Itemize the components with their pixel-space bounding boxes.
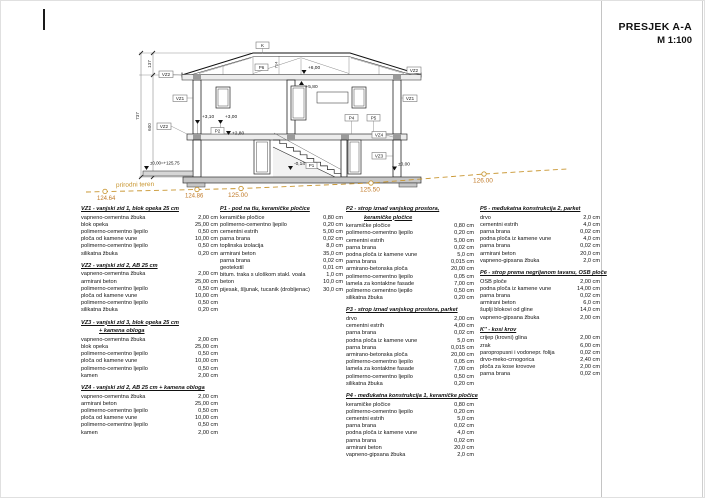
material-thickness: 14,00 cm	[577, 286, 600, 293]
legend-column: P5 - međukatna konstrukcija 2, parketdrv…	[480, 206, 600, 384]
legend-section: P5 - međukatna konstrukcija 2, parketdrv…	[480, 206, 600, 265]
material-name: keramičke pločice	[346, 223, 390, 230]
legend-row: vapneno-cementna žbuka2,00 cm	[81, 394, 218, 401]
material-thickness: 6,00 cm	[580, 343, 600, 350]
material-name: drvo	[480, 215, 491, 222]
legend-row: vapneno-cementna žbuka2,00 cm	[81, 271, 218, 278]
legend-row: polimerno-cementno ljepilo0,50 cm	[81, 408, 218, 415]
material-name: lamela za kontaktne fasade	[346, 281, 414, 288]
material-thickness: 0,02 cm	[454, 245, 474, 252]
material-name: ploča od kamene vune	[81, 415, 137, 422]
legend-row: parna brana0,02 cm	[220, 258, 343, 265]
material-thickness: 0,02 cm	[454, 330, 474, 337]
legend-row: ploča od kamene vune10,00 cm	[81, 358, 218, 365]
material-thickness: 10,0 cm	[323, 279, 343, 286]
material-thickness: 2,00 cm	[454, 316, 474, 323]
legend-row: toplinska izolacija8,0 cm	[220, 243, 343, 250]
material-name: parna brana	[346, 438, 376, 445]
material-name: polimerno-cementno ljepilo	[81, 351, 148, 358]
legend-row: cementni estrih5,0 cm	[346, 416, 474, 423]
material-thickness: 4,0 cm	[457, 430, 474, 437]
material-thickness: 0,02 cm	[580, 293, 600, 300]
material-name: polimerno cementno ljepilo	[346, 288, 413, 295]
material-thickness: 0,50 cm	[198, 351, 218, 358]
legend-section-title: P6 - strop prema negrijanom tavanu, OSB …	[480, 270, 600, 278]
legend-section-title: P5 - međukatna konstrukcija 2, parket	[480, 206, 600, 214]
material-thickness: 2,00 cm	[198, 271, 218, 278]
material-thickness: 2,00 cm	[580, 315, 600, 322]
material-name: armirani beton	[81, 401, 117, 408]
legend-column: P2 - strop iznad vanjskog prostora,keram…	[346, 206, 474, 464]
material-name: kamen	[81, 430, 98, 437]
material-name: ploča za kose krovove	[480, 364, 535, 371]
material-thickness: 0,80 cm	[454, 223, 474, 230]
legend-row: parna brana0,02 cm	[346, 245, 474, 252]
material-name: cementni estrih	[346, 416, 384, 423]
material-name: cementni estrih	[346, 323, 384, 330]
material-thickness: 0,20 cm	[454, 295, 474, 302]
legend-row: geotekstil0,01 cm	[220, 265, 343, 272]
legend-row: podna ploča iz kamene vune4,0 cm	[480, 236, 600, 243]
legend-row: drvo2,00 cm	[346, 316, 474, 323]
material-thickness: 10,00 cm	[195, 293, 218, 300]
material-name: parna brana	[480, 293, 510, 300]
legend-row: parna brana0,02 cm	[346, 423, 474, 430]
legend-row: vapneno-gipsana žbuka2,00 cm	[480, 315, 600, 322]
material-thickness: 2,00 cm	[198, 337, 218, 344]
material-name: podna ploča iz kamene vune	[346, 430, 417, 437]
material-name: polimerno-cementno ljepilo	[346, 374, 413, 381]
legend-row: polimerno-cementno ljepilo0,50 cm	[81, 229, 218, 236]
material-name: parna brana	[220, 236, 250, 243]
material-name: parna brana	[480, 229, 510, 236]
material-name: polimerno-cementno ljepilo	[81, 408, 148, 415]
legend-row: keramičke pločice0,80 cm	[346, 402, 474, 409]
material-thickness: 2,0 cm	[583, 215, 600, 222]
material-thickness: 4,00 cm	[454, 323, 474, 330]
legend-row: armirani beton20,0 cm	[346, 445, 474, 452]
material-thickness: 0,20 cm	[454, 409, 474, 416]
material-name: armirano-betonska ploča	[346, 266, 408, 273]
material-name: pijesak, šljunak, tucanik (drobljenac)	[220, 287, 310, 294]
legend-section-title: + kamena obloga	[81, 328, 218, 336]
material-thickness: 0,50 cm	[198, 422, 218, 429]
legend-section: VZ4 - vanjski zid 2, AB 25 cm + kamena o…	[81, 385, 218, 437]
material-name: silikatna žbuka	[346, 295, 383, 302]
material-name: parna brana	[346, 423, 376, 430]
material-thickness: 2,00 cm	[198, 373, 218, 380]
legend-section: VZ2 - vanjski zid 2, AB 25 cmvapneno-cem…	[81, 263, 218, 315]
legend-section-title: P4 - međukatna konstrukcija 1, keramičke…	[346, 393, 474, 401]
material-name: armirani beton	[220, 251, 256, 258]
material-thickness: 0,80 cm	[454, 402, 474, 409]
legend-row: polimerno-cementno ljepilo0,50 cm	[81, 243, 218, 250]
legend-row: armirani beton25,00 cm	[81, 401, 218, 408]
legend-row: paropropusni i vodonepr. folija0,02 cm	[480, 350, 600, 357]
material-thickness: 0,20 cm	[323, 222, 343, 229]
material-name: cementni estrih	[220, 229, 258, 236]
legend-section: P3 - strop iznad vanjskog prostora, park…	[346, 307, 474, 388]
material-name: bitum. traka s uloškom stakl. voala	[220, 272, 306, 279]
material-name: parna brana	[346, 345, 376, 352]
legend-row: parna brana0,02 cm	[480, 293, 600, 300]
legend-row: lamela za kontaktne fasade7,00 cm	[346, 366, 474, 373]
legend-row: ploča za kose krovove2,00 cm	[480, 364, 600, 371]
legend-row: podna ploča iz kamene vune5,0 cm	[346, 338, 474, 345]
material-name: silikatna žbuka	[81, 251, 118, 258]
material-name: podna ploča iz kamene vune	[480, 236, 551, 243]
material-thickness: 2,0 cm	[583, 258, 600, 265]
material-thickness: 5,00 cm	[454, 238, 474, 245]
material-name: polimerno-cementno ljepilo	[346, 409, 413, 416]
legend-row: OSB ploče2,00 cm	[480, 279, 600, 286]
material-thickness: 10,00 cm	[195, 358, 218, 365]
material-thickness: 0,20 cm	[454, 230, 474, 237]
material-thickness: 0,015 cm	[451, 345, 474, 352]
material-name: polimerno-cementno ljepilo	[81, 300, 148, 307]
material-name: polimerno-cementno ljepilo	[81, 286, 148, 293]
legend-row: drvo2,0 cm	[480, 215, 600, 222]
legend-row: silikatna žbuka0,20 cm	[81, 251, 218, 258]
material-thickness: 20,00 cm	[451, 352, 474, 359]
legend-row: silikatna žbuka0,20 cm	[81, 307, 218, 314]
material-name: cementni estrih	[480, 222, 518, 229]
legend-section: P1 - pod na tlu, keramičke pločicekerami…	[220, 206, 343, 294]
material-name: parna brana	[346, 245, 376, 252]
material-name: vapneno-cementna žbuka	[81, 337, 145, 344]
legend-row: vapneno-cementna žbuka2,00 cm	[81, 215, 218, 222]
legend-section-title: keramičke pločice	[346, 215, 474, 223]
material-name: vapneno-cementna žbuka	[81, 394, 145, 401]
material-name: keramičke pločice	[346, 402, 390, 409]
legend-row: ploča od kamene vune10,00 cm	[81, 415, 218, 422]
material-thickness: 2,00 cm	[198, 394, 218, 401]
material-name: polimerno-cementno ljepilo	[81, 229, 148, 236]
material-name: drvo-meko-crnogorica	[480, 357, 534, 364]
legend-row: podna ploča iz kamene vune14,00 cm	[480, 286, 600, 293]
material-name: vapneno-gipsana žbuka	[480, 315, 539, 322]
legend-row: keramičke pločice0,80 cm	[346, 223, 474, 230]
material-name: vapneno-gipsana žbuka	[480, 258, 539, 265]
legend-row: ploča od kamene vune10,00 cm	[81, 293, 218, 300]
material-thickness: 7,00 cm	[454, 366, 474, 373]
material-name: cementni estrih	[346, 238, 384, 245]
material-thickness: 0,02 cm	[323, 236, 343, 243]
material-thickness: 0,015 cm	[451, 259, 474, 266]
material-thickness: 0,50 cm	[198, 300, 218, 307]
material-thickness: 25,00 cm	[195, 222, 218, 229]
material-name: podna ploča iz kamene vune	[346, 252, 417, 259]
material-name: armirani beton	[81, 279, 117, 286]
legend-row: armirani beton20,0 cm	[480, 251, 600, 258]
material-name: podna ploča iz kamene vune	[346, 338, 417, 345]
material-thickness: 0,02 cm	[454, 423, 474, 430]
material-name: polimerno-cementno ljepilo	[346, 359, 413, 366]
legend-section: P6 - strop prema negrijanom tavanu, OSB …	[480, 270, 600, 322]
material-legend: VZ1 - vanjski zid 1, blok opeka 25 cmvap…	[1, 1, 705, 498]
material-thickness: 0,50 cm	[198, 243, 218, 250]
legend-row: šuplji blokovi od gline14,0 cm	[480, 307, 600, 314]
legend-row: armirani beton6,0 cm	[480, 300, 600, 307]
material-name: paropropusni i vodonepr. folija	[480, 350, 555, 357]
material-name: parna brana	[480, 243, 510, 250]
material-thickness: 35,0 cm	[323, 251, 343, 258]
material-thickness: 2,00 cm	[198, 215, 218, 222]
legend-row: polimerno-cementno ljepilo0,05 cm	[346, 359, 474, 366]
legend-row: blok opeka25,00 cm	[81, 344, 218, 351]
material-thickness: 0,50 cm	[198, 366, 218, 373]
legend-row: polimerno-cementno ljepilo0,50 cm	[346, 374, 474, 381]
material-thickness: 2,00 cm	[580, 279, 600, 286]
legend-section-title: VZ2 - vanjski zid 2, AB 25 cm	[81, 263, 218, 271]
legend-section: K'' - kosi krovcrijep (krovni) glina2,00…	[480, 327, 600, 379]
legend-row: armirano-betonska ploča20,00 cm	[346, 266, 474, 273]
material-thickness: 0,02 cm	[323, 258, 343, 265]
material-thickness: 25,00 cm	[195, 344, 218, 351]
legend-row: polimerno-cementno ljepilo0,50 cm	[81, 300, 218, 307]
material-name: parna brana	[220, 258, 250, 265]
material-name: OSB ploče	[480, 279, 507, 286]
legend-row: cementni estrih4,0 cm	[480, 222, 600, 229]
material-name: armirani beton	[480, 300, 516, 307]
legend-row: parna brana0,015 cm	[346, 345, 474, 352]
material-thickness: 20,00 cm	[451, 266, 474, 273]
material-name: silikatna žbuka	[346, 381, 383, 388]
legend-row: polimerno-cementno ljepilo0,50 cm	[81, 286, 218, 293]
material-thickness: 0,50 cm	[198, 408, 218, 415]
legend-section-title: VZ3 - vanjski zid 3, blok opeka 25 cm	[81, 320, 218, 328]
material-name: blok opeka	[81, 344, 108, 351]
legend-row: armirani beton35,0 cm	[220, 251, 343, 258]
material-thickness: 0,05 cm	[454, 359, 474, 366]
legend-row: kamen2,00 cm	[81, 430, 218, 437]
material-thickness: 8,0 cm	[326, 243, 343, 250]
material-thickness: 0,02 cm	[454, 438, 474, 445]
material-thickness: 1,0 cm	[326, 272, 343, 279]
legend-row: blok opeka25,00 cm	[81, 222, 218, 229]
material-thickness: 0,50 cm	[454, 288, 474, 295]
legend-row: polimerno-cementno ljepilo0,50 cm	[81, 351, 218, 358]
legend-section: VZ3 - vanjski zid 3, blok opeka 25 cm+ k…	[81, 320, 218, 380]
legend-section-title: VZ1 - vanjski zid 1, blok opeka 25 cm	[81, 206, 218, 214]
legend-row: podna ploča iz kamene vune4,0 cm	[346, 430, 474, 437]
material-name: parna brana	[480, 371, 510, 378]
material-thickness: 5,0 cm	[457, 416, 474, 423]
legend-row: bitum. traka s uloškom stakl. voala1,0 c…	[220, 272, 343, 279]
legend-row: cementni estrih5,00 cm	[346, 238, 474, 245]
material-thickness: 0,20 cm	[198, 307, 218, 314]
material-thickness: 0,50 cm	[198, 286, 218, 293]
material-name: vapneno-gipsana žbuka	[346, 452, 405, 459]
legend-row: polimerno cementno ljepilo0,50 cm	[346, 288, 474, 295]
material-thickness: 0,02 cm	[580, 371, 600, 378]
material-thickness: 7,00 cm	[454, 281, 474, 288]
legend-row: polimerno-cementno ljepilo0,20 cm	[346, 409, 474, 416]
legend-row: parna brana0,02 cm	[480, 229, 600, 236]
material-thickness: 20,0 cm	[580, 251, 600, 258]
legend-row: beton10,0 cm	[220, 279, 343, 286]
legend-section-title: VZ4 - vanjski zid 2, AB 25 cm + kamena o…	[81, 385, 218, 393]
legend-section-title: P3 - strop iznad vanjskog prostora, park…	[346, 307, 474, 315]
legend-section-title: P1 - pod na tlu, keramičke pločice	[220, 206, 343, 214]
material-thickness: 25,00 cm	[195, 279, 218, 286]
legend-row: silikatna žbuka0,20 cm	[346, 295, 474, 302]
legend-row: kamen2,00 cm	[81, 373, 218, 380]
material-name: toplinska izolacija	[220, 243, 264, 250]
material-name: podna ploča iz kamene vune	[480, 286, 551, 293]
material-name: armirani beton	[480, 251, 516, 258]
legend-row: parna brana0,015 cm	[346, 259, 474, 266]
material-name: polimerno-cementno ljepilo	[220, 222, 287, 229]
legend-row: crijep (krovni) glina2,00 cm	[480, 335, 600, 342]
legend-row: ploča od kamene vune10,00 cm	[81, 236, 218, 243]
legend-row: lamela za kontaktne fasade7,00 cm	[346, 281, 474, 288]
material-thickness: 4,0 cm	[583, 222, 600, 229]
material-thickness: 5,0 cm	[457, 252, 474, 259]
legend-column: P1 - pod na tlu, keramičke pločicekerami…	[220, 206, 343, 299]
legend-row: cementni estrih5,00 cm	[220, 229, 343, 236]
material-name: vapneno-cementna žbuka	[81, 215, 145, 222]
material-thickness: 30,0 cm	[323, 287, 343, 294]
legend-row: armirano-betonska ploča20,00 cm	[346, 352, 474, 359]
material-thickness: 0,05 cm	[454, 274, 474, 281]
material-name: parna brana	[346, 259, 376, 266]
legend-column: VZ1 - vanjski zid 1, blok opeka 25 cmvap…	[81, 206, 218, 442]
material-thickness: 0,02 cm	[580, 350, 600, 357]
legend-row: parna brana0,02 cm	[346, 438, 474, 445]
material-thickness: 0,50 cm	[454, 374, 474, 381]
legend-row: polimerno-cementno ljepilo0,05 cm	[346, 274, 474, 281]
material-name: ploča od kamene vune	[81, 358, 137, 365]
material-thickness: 0,20 cm	[198, 251, 218, 258]
material-name: keramičke pločice	[220, 215, 264, 222]
material-thickness: 0,80 cm	[323, 215, 343, 222]
material-thickness: 4,0 cm	[583, 236, 600, 243]
legend-section-title: P2 - strop iznad vanjskog prostora,	[346, 206, 474, 214]
material-name: geotekstil	[220, 265, 244, 272]
material-thickness: 2,00 cm	[580, 364, 600, 371]
legend-row: keramičke pločice0,80 cm	[220, 215, 343, 222]
legend-row: polimerno-cementno ljepilo0,50 cm	[81, 366, 218, 373]
material-name: lamela za kontaktne fasade	[346, 366, 414, 373]
legend-row: vapneno-gipsana žbuka2,0 cm	[346, 452, 474, 459]
material-thickness: 10,00 cm	[195, 236, 218, 243]
material-name: kamen	[81, 373, 98, 380]
material-name: ploča od kamene vune	[81, 236, 137, 243]
legend-section: P2 - strop iznad vanjskog prostora,keram…	[346, 206, 474, 302]
material-thickness: 2,00 cm	[198, 430, 218, 437]
material-thickness: 2,00 cm	[580, 335, 600, 342]
legend-row: podna ploča iz kamene vune5,0 cm	[346, 252, 474, 259]
material-name: drvo	[346, 316, 357, 323]
material-name: polimerno-cementno ljepilo	[81, 422, 148, 429]
material-name: polimerno-cementno ljepilo	[346, 230, 413, 237]
legend-row: parna brana0,02 cm	[480, 243, 600, 250]
legend-row: parna brana0,02 cm	[346, 330, 474, 337]
legend-row: pijesak, šljunak, tucanik (drobljenac)30…	[220, 287, 343, 294]
material-thickness: 2,40 cm	[580, 357, 600, 364]
material-name: polimerno-cementno ljepilo	[81, 366, 148, 373]
legend-row: parna brana0,02 cm	[480, 371, 600, 378]
legend-row: polimerno-cementno ljepilo0,20 cm	[346, 230, 474, 237]
legend-row: silikatna žbuka0,20 cm	[346, 381, 474, 388]
material-thickness: 0,50 cm	[198, 229, 218, 236]
legend-row: polimerno-cementno ljepilo0,20 cm	[220, 222, 343, 229]
material-name: parna brana	[346, 330, 376, 337]
legend-section: VZ1 - vanjski zid 1, blok opeka 25 cmvap…	[81, 206, 218, 258]
material-thickness: 10,00 cm	[195, 415, 218, 422]
material-name: polimerno-cementno ljepilo	[81, 243, 148, 250]
legend-row: zrak6,00 cm	[480, 343, 600, 350]
material-name: blok opeka	[81, 222, 108, 229]
legend-row: cementni estrih4,00 cm	[346, 323, 474, 330]
material-name: armirano-betonska ploča	[346, 352, 408, 359]
material-name: beton	[220, 279, 234, 286]
material-thickness: 0,02 cm	[580, 243, 600, 250]
material-name: ploča od kamene vune	[81, 293, 137, 300]
material-name: silikatna žbuka	[81, 307, 118, 314]
legend-section: P4 - međukatna konstrukcija 1, keramičke…	[346, 393, 474, 459]
material-thickness: 0,20 cm	[454, 381, 474, 388]
material-thickness: 5,0 cm	[457, 338, 474, 345]
legend-row: vapneno-gipsana žbuka2,0 cm	[480, 258, 600, 265]
legend-row: parna brana0,02 cm	[220, 236, 343, 243]
material-name: zrak	[480, 343, 491, 350]
material-name: crijep (krovni) glina	[480, 335, 527, 342]
material-thickness: 6,0 cm	[583, 300, 600, 307]
legend-row: drvo-meko-crnogorica2,40 cm	[480, 357, 600, 364]
material-thickness: 14,0 cm	[580, 307, 600, 314]
legend-section-title: K'' - kosi krov	[480, 327, 600, 335]
drawing-sheet: PRESJEK A-A M 1:100 737 137 600 714	[0, 0, 705, 498]
legend-row: vapneno-cementna žbuka2,00 cm	[81, 337, 218, 344]
material-name: polimerno-cementno ljepilo	[346, 274, 413, 281]
material-thickness: 20,0 cm	[454, 445, 474, 452]
material-name: vapneno-cementna žbuka	[81, 271, 145, 278]
material-thickness: 25,00 cm	[195, 401, 218, 408]
material-thickness: 0,02 cm	[580, 229, 600, 236]
material-thickness: 2,0 cm	[457, 452, 474, 459]
material-thickness: 0,01 cm	[323, 265, 343, 272]
legend-row: polimerno-cementno ljepilo0,50 cm	[81, 422, 218, 429]
material-thickness: 5,00 cm	[323, 229, 343, 236]
material-name: armirani beton	[346, 445, 382, 452]
material-name: šuplji blokovi od gline	[480, 307, 533, 314]
legend-row: armirani beton25,00 cm	[81, 279, 218, 286]
